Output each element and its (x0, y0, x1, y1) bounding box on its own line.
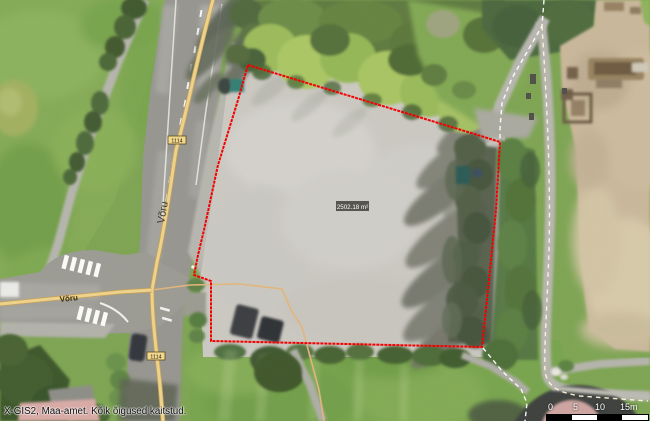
svg-text:1114: 1114 (150, 355, 161, 361)
svg-text:2502.18 m²: 2502.18 m² (337, 204, 368, 211)
svg-text:Võru: Võru (59, 293, 78, 304)
svg-text:1114: 1114 (171, 139, 182, 145)
